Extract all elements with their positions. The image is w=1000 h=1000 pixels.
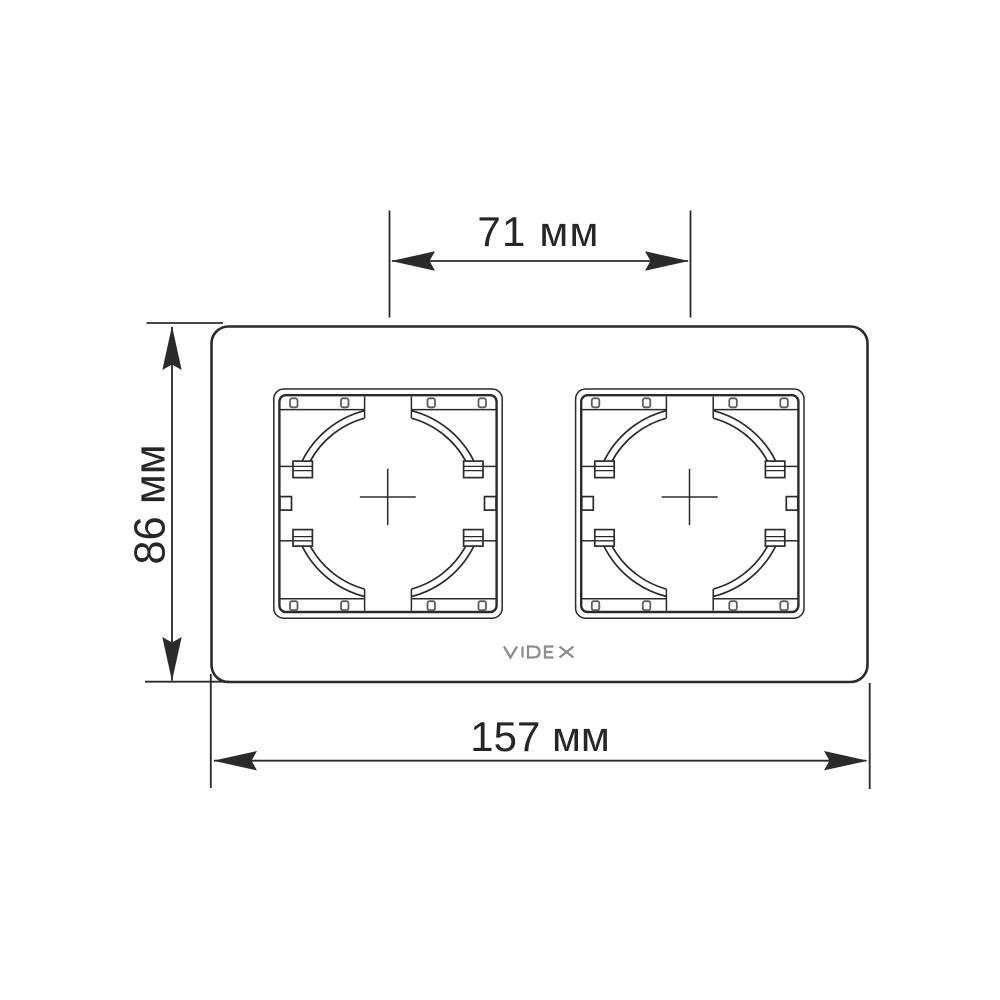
svg-text:86 мм: 86 мм	[127, 444, 175, 564]
svg-text:157 мм: 157 мм	[470, 713, 610, 760]
svg-text:71 мм: 71 мм	[477, 208, 599, 255]
